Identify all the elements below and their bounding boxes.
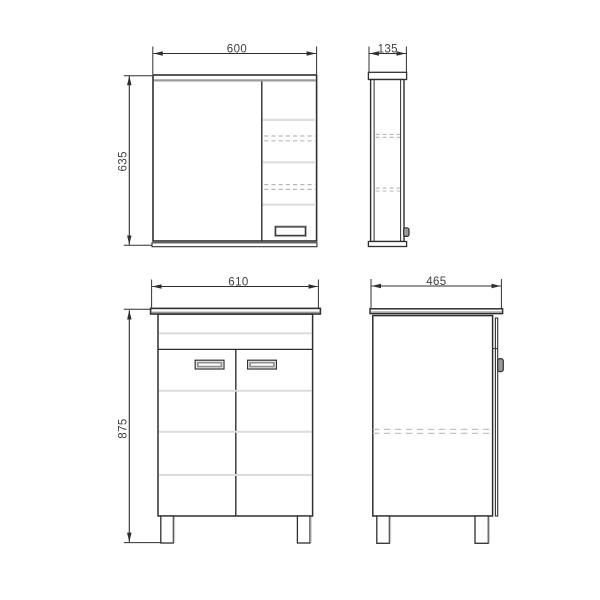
mirror-side-outline [371, 80, 404, 242]
side-bottom-cap [368, 242, 406, 247]
base-depth-label: 465 [426, 276, 446, 288]
base-cabinet-side-view: 465 [370, 276, 503, 543]
mirror-width-label: 600 [227, 43, 247, 55]
mirror-depth-dimension: 135 [369, 43, 406, 71]
countertop [151, 308, 321, 314]
mirror-cabinet-side-view: 135 [368, 43, 409, 246]
base-height-dimension: 875 [117, 309, 160, 542]
base-width-label: 610 [228, 276, 248, 288]
base-cabinet-front-view: 610 875 [117, 276, 320, 543]
right-door-handle-inset [250, 363, 274, 367]
technical-drawing-page: 600 635 135 [0, 0, 600, 600]
base-width-dimension: 610 [152, 276, 319, 308]
front-left-leg [161, 516, 174, 543]
side-door-handle [498, 359, 504, 372]
side-top-cap [368, 72, 406, 79]
mirror-depth-label: 135 [378, 43, 398, 55]
door-handle [404, 228, 409, 237]
technical-drawing-canvas: 600 635 135 [0, 0, 600, 600]
base-side-outline [373, 316, 493, 516]
side-right-leg [475, 516, 488, 543]
mirror-height-label: 635 [117, 151, 129, 171]
mirror-width-dimension: 600 [153, 43, 317, 74]
mirror-cabinet-outline [153, 75, 317, 241]
mirror-height-dimension: 635 [117, 76, 152, 246]
switch-box [276, 227, 306, 236]
bottom-trim [152, 243, 317, 247]
side-left-leg [377, 516, 390, 543]
mirror-cabinet-front-view: 600 635 [117, 43, 317, 246]
left-door-handle-inset [198, 363, 222, 367]
front-right-leg [297, 516, 310, 543]
base-height-label: 875 [117, 418, 129, 438]
base-depth-dimension: 465 [371, 276, 501, 309]
countertop-side [370, 309, 503, 314]
door-front-panel [495, 318, 497, 516]
